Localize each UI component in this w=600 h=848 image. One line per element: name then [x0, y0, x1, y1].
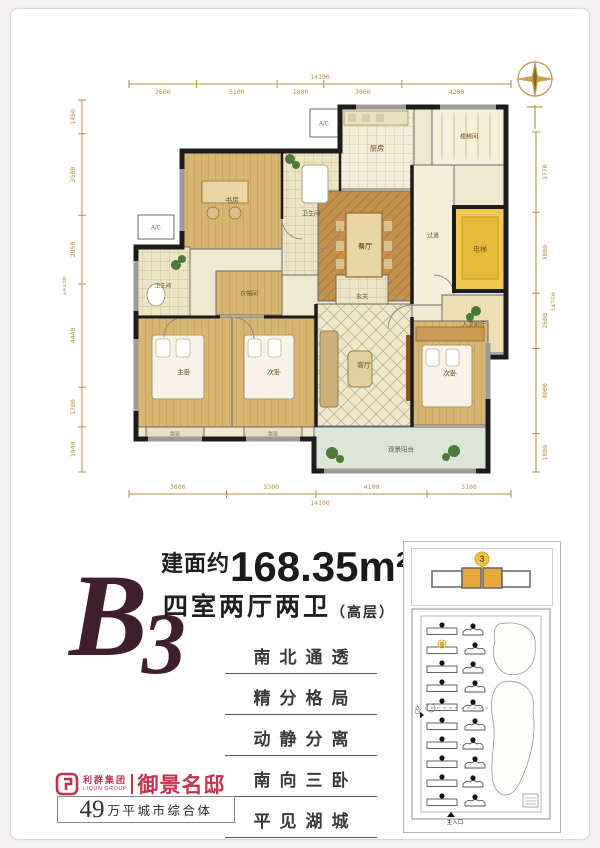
building-marker	[472, 794, 477, 799]
tagline-text: 万平城市综合体	[107, 800, 212, 819]
room-label: 餐厅	[358, 242, 372, 251]
svg-text:2600: 2600	[155, 88, 171, 95]
building-marker	[439, 793, 444, 798]
dimension-line-left: 14503500295044401700194014150	[63, 95, 93, 477]
svg-text:4000: 4000	[541, 383, 549, 399]
building-marker	[470, 775, 475, 780]
liqun-logo-icon	[55, 772, 79, 796]
building-footprint	[465, 686, 485, 693]
brand-group-cn: 利群集团	[83, 776, 127, 786]
entrance-main-label: 主入口	[447, 818, 464, 826]
svg-text:3100: 3100	[229, 88, 245, 95]
selling-points-list: 南北通透精分格局动静分离南向三卧平见湖城	[225, 637, 377, 842]
building-footprint	[465, 648, 485, 655]
room-label: 入室前厅	[462, 321, 486, 329]
building-marker	[472, 642, 477, 647]
svg-text:14150: 14150	[63, 276, 68, 296]
layout-note: （高层）	[331, 604, 395, 620]
building-footprint	[427, 799, 457, 806]
tagline-box: 49 万平城市综合体	[57, 796, 235, 823]
building-marker	[439, 698, 444, 703]
room-label: A/C	[151, 226, 162, 232]
room-label: 楼梯间	[460, 133, 478, 141]
room-label: 书房	[225, 196, 239, 205]
selling-point: 南向三卧	[225, 760, 377, 797]
building-marker	[439, 717, 444, 722]
building-marker	[439, 679, 444, 684]
room-label: 主卧	[177, 368, 191, 377]
unit-code-letter: B	[69, 550, 148, 681]
room-label: 厨房	[370, 144, 384, 153]
svg-text:1700: 1700	[69, 399, 77, 415]
building-footprint	[427, 742, 457, 749]
svg-text:14100: 14100	[310, 73, 330, 81]
lake-shape	[494, 623, 536, 675]
svg-text:2600: 2600	[541, 313, 549, 329]
brand-divider	[131, 774, 133, 794]
building-marker	[472, 680, 477, 685]
floor-plan: 书房卫生间厨房餐厅楼梯间过道电梯入室前厅卫生间衣帽间玄关主卧次卧客厅次卧观景阳台…	[124, 99, 516, 479]
building-marker	[470, 623, 475, 628]
flyer-card: 2600310018003000420014100 36003300410031…	[10, 8, 590, 840]
layout-line: 四室两厅两卫（高层）	[163, 587, 395, 623]
room-label: 卫生间	[302, 210, 320, 218]
room-label: 卫生间	[155, 282, 172, 290]
building-footprint	[427, 704, 457, 711]
svg-text:3500: 3500	[69, 167, 77, 183]
building-footprint	[465, 800, 485, 807]
dimension-line-bottom: 360033004100310014100	[124, 483, 516, 513]
selling-point: 精分格局	[225, 678, 377, 715]
tagline-number: 49	[79, 797, 104, 822]
building-marker	[439, 736, 444, 741]
area-prefix: 建面约	[161, 551, 230, 576]
area-line: 建面约168.35m²	[161, 543, 410, 591]
site-map-panel: 3 入口主入口	[403, 541, 561, 833]
layout-text: 四室两厅两卫	[163, 593, 331, 621]
building-footprint	[427, 723, 457, 730]
key-plan: 3	[411, 548, 553, 606]
building-footprint	[463, 629, 483, 636]
svg-text:1800: 1800	[293, 88, 309, 95]
room-label: 飘窗	[268, 431, 278, 438]
svg-text:14750: 14750	[550, 292, 555, 312]
building-footprint	[427, 666, 457, 673]
room-label: 客厅	[357, 361, 371, 370]
svg-text:4200: 4200	[449, 88, 465, 95]
svg-text:3800: 3800	[541, 245, 549, 261]
building-footprint	[463, 667, 483, 674]
room-label: 玄关	[356, 293, 368, 301]
dimension-line-right: 3770380026004000180014750	[525, 127, 555, 477]
room-label: 观景阳台	[388, 445, 414, 454]
svg-text:1800: 1800	[541, 445, 549, 461]
dimension-line-top: 2600310018003000420014100	[124, 65, 516, 95]
svg-text:1450: 1450	[69, 109, 77, 125]
svg-text:3300: 3300	[263, 483, 279, 491]
svg-text:4440: 4440	[69, 328, 77, 344]
brand-block: 利群集团 LIQUN GROUP 御景名邸	[55, 769, 226, 799]
svg-text:3770: 3770	[541, 164, 549, 180]
building-marker	[470, 737, 475, 742]
site-plan: 入口主入口	[411, 608, 551, 826]
building-marker	[472, 756, 477, 761]
building-marker	[439, 774, 444, 779]
svg-text:14100: 14100	[310, 499, 330, 507]
building-footprint	[427, 685, 457, 692]
brand-group-names: 利群集团 LIQUN GROUP	[83, 776, 127, 792]
building-marker	[470, 699, 475, 704]
selling-point: 平见湖城	[225, 801, 377, 838]
svg-text:3100: 3100	[461, 483, 477, 491]
building-marker	[472, 718, 477, 723]
svg-text:2950: 2950	[69, 242, 77, 258]
building-footprint	[463, 743, 483, 750]
brand-group-en: LIQUN GROUP	[83, 786, 127, 792]
building-marker	[439, 641, 444, 646]
building-marker	[439, 622, 444, 627]
building-footprint	[427, 761, 457, 768]
room-label: 电梯	[473, 245, 487, 254]
building-marker	[439, 755, 444, 760]
room-label: 次卧	[267, 368, 281, 377]
room-label: 次卧	[443, 369, 457, 378]
svg-text:4100: 4100	[364, 483, 380, 491]
room-label: A/C	[319, 122, 330, 128]
selling-point: 南北通透	[225, 637, 377, 674]
building-footprint	[463, 781, 483, 788]
room-label: 衣帽间	[240, 290, 258, 298]
selling-point: 动静分离	[225, 719, 377, 756]
room-label: 过道	[427, 232, 439, 240]
building-footprint	[465, 724, 485, 731]
compass-rose-icon	[509, 53, 561, 131]
svg-text:3000: 3000	[355, 88, 371, 95]
area-value: 168.35m²	[230, 543, 410, 590]
entrance-left-label: 入口	[414, 704, 420, 715]
room-label: 飘窗	[170, 431, 180, 438]
svg-text:3600: 3600	[170, 483, 186, 491]
building-marker	[470, 661, 475, 666]
building-footprint	[427, 780, 457, 787]
svg-text:1940: 1940	[69, 442, 77, 458]
brand-project-name: 御景名邸	[138, 769, 226, 799]
building-footprint	[427, 628, 457, 635]
building-marker	[439, 660, 444, 665]
building-footprint	[465, 762, 485, 769]
unit-number: 3	[479, 554, 484, 564]
